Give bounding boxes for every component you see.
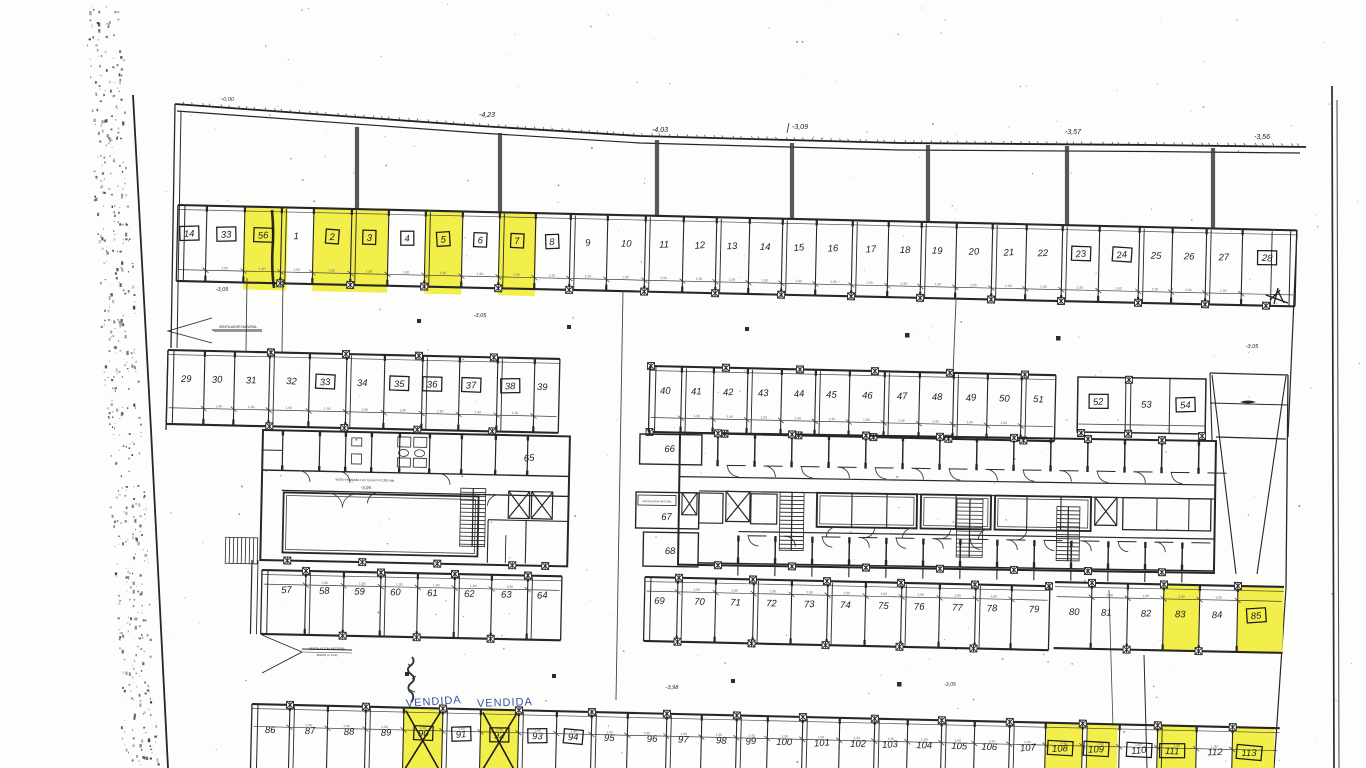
svg-text:1,90: 1,90 [1115, 286, 1122, 290]
svg-text:1,90: 1,90 [1142, 594, 1149, 598]
svg-text:26: 26 [1183, 251, 1196, 262]
svg-text:-3,05: -3,05 [1246, 344, 1259, 350]
svg-text:83: 83 [1175, 609, 1186, 620]
svg-text:85: 85 [1250, 610, 1262, 622]
svg-text:13: 13 [727, 241, 739, 252]
svg-text:1,90: 1,90 [359, 582, 366, 586]
svg-text:36: 36 [427, 379, 438, 390]
svg-text:1,90: 1,90 [1185, 288, 1192, 292]
svg-text:1: 1 [293, 231, 299, 242]
svg-text:113: 113 [1241, 748, 1257, 759]
svg-text:46: 46 [862, 390, 874, 401]
svg-text:1,90: 1,90 [1000, 421, 1007, 425]
svg-text:109: 109 [1088, 744, 1105, 755]
svg-text:86: 86 [265, 725, 276, 736]
svg-text:1,90: 1,90 [1178, 595, 1185, 599]
svg-text:1,90: 1,90 [769, 589, 776, 593]
svg-text:91: 91 [455, 729, 466, 741]
svg-text:112: 112 [1207, 747, 1223, 758]
svg-text:10: 10 [621, 238, 633, 249]
svg-text:33: 33 [319, 377, 331, 389]
svg-text:~0,00: ~0,00 [220, 97, 235, 103]
svg-text:1,90: 1,90 [795, 279, 802, 283]
svg-text:1,90: 1,90 [470, 584, 477, 588]
svg-text:1,90: 1,90 [863, 418, 870, 422]
svg-text:66: 66 [664, 444, 676, 456]
svg-text:70: 70 [694, 597, 706, 608]
svg-text:40: 40 [660, 386, 672, 397]
svg-text:48: 48 [932, 392, 944, 403]
svg-text:1,90: 1,90 [843, 591, 850, 595]
svg-text:49: 49 [965, 392, 977, 404]
svg-text:57: 57 [281, 585, 293, 596]
svg-text:1,90: 1,90 [761, 416, 768, 420]
svg-text:76: 76 [914, 602, 926, 613]
svg-text:1,90: 1,90 [954, 594, 961, 598]
svg-text:-3,05: -3,05 [216, 287, 229, 293]
svg-text:104: 104 [916, 740, 932, 752]
svg-text:43: 43 [758, 388, 770, 400]
svg-text:1,90: 1,90 [866, 281, 873, 285]
svg-text:1,90: 1,90 [437, 409, 444, 413]
svg-text:24: 24 [1115, 249, 1128, 261]
svg-text:106: 106 [981, 742, 998, 754]
svg-text:11: 11 [659, 239, 669, 250]
svg-text:53: 53 [1141, 399, 1153, 410]
svg-text:71: 71 [730, 597, 741, 608]
svg-text:VENDIDA: VENDIDA [477, 696, 533, 710]
svg-text:1,90: 1,90 [248, 405, 255, 409]
svg-text:12: 12 [694, 240, 706, 252]
svg-text:17: 17 [865, 244, 877, 256]
svg-text:1,90: 1,90 [440, 271, 447, 275]
svg-text:1,90: 1,90 [932, 419, 939, 423]
svg-text:1,90: 1,90 [321, 581, 328, 585]
svg-text:1,90: 1,90 [898, 419, 905, 423]
svg-text:74: 74 [840, 600, 851, 611]
svg-text:14: 14 [184, 229, 195, 241]
svg-text:39: 39 [537, 382, 549, 393]
svg-text:1,90: 1,90 [366, 269, 373, 273]
svg-text:1,90: 1,90 [512, 411, 519, 415]
svg-text:107: 107 [1020, 742, 1037, 754]
svg-text:-3,05: -3,05 [944, 682, 956, 688]
svg-text:1,90: 1,90 [585, 274, 592, 278]
svg-text:1,90: 1,90 [694, 414, 701, 418]
svg-text:65: 65 [523, 453, 535, 465]
svg-text:1,90: 1,90 [285, 406, 292, 410]
svg-text:25: 25 [1150, 251, 1162, 262]
svg-text:1,90: 1,90 [1151, 287, 1158, 291]
svg-text:44: 44 [793, 388, 805, 400]
svg-text:1,90: 1,90 [795, 416, 802, 420]
svg-text:1,90: 1,90 [324, 407, 331, 411]
svg-text:-3,56: -3,56 [1254, 134, 1270, 141]
svg-text:1,90: 1,90 [970, 283, 977, 287]
svg-text:31: 31 [246, 375, 257, 386]
svg-text:37: 37 [466, 380, 478, 392]
svg-text:1,90: 1,90 [990, 594, 997, 598]
svg-text:50: 50 [999, 393, 1011, 405]
svg-text:1,90: 1,90 [399, 408, 406, 412]
svg-text:98: 98 [716, 735, 728, 747]
svg-text:72: 72 [766, 598, 777, 609]
svg-text:95: 95 [604, 733, 616, 744]
svg-text:1,90: 1,90 [693, 588, 700, 592]
svg-text:59: 59 [354, 586, 365, 597]
svg-text:94: 94 [568, 732, 579, 743]
svg-text:VENTILADOR NATURAL: VENTILADOR NATURAL [219, 325, 257, 329]
svg-text:1,90: 1,90 [215, 404, 222, 408]
svg-text:42: 42 [723, 387, 735, 399]
svg-text:88: 88 [343, 726, 355, 738]
svg-text:1,90: 1,90 [506, 585, 513, 589]
svg-text:-4,23: -4,23 [479, 112, 495, 119]
svg-text:51: 51 [1033, 394, 1044, 406]
svg-text:84: 84 [1211, 610, 1222, 622]
svg-text:1,90: 1,90 [731, 589, 738, 593]
svg-text:60: 60 [390, 587, 402, 598]
svg-text:1,90: 1,90 [696, 277, 703, 281]
svg-text:28: 28 [1261, 253, 1274, 265]
svg-text:18: 18 [900, 245, 911, 256]
svg-text:54: 54 [1180, 400, 1191, 412]
svg-text:21: 21 [1002, 247, 1014, 259]
svg-text:1,90: 1,90 [1040, 285, 1047, 289]
svg-text:1,90: 1,90 [880, 592, 887, 596]
svg-text:-3,09: -3,09 [792, 124, 808, 131]
svg-text:93: 93 [532, 731, 544, 742]
svg-text:VENTILACION NATURAL: VENTILACION NATURAL [642, 499, 673, 503]
svg-text:33: 33 [221, 229, 233, 241]
svg-text:79: 79 [1029, 604, 1041, 616]
svg-text:100: 100 [776, 737, 793, 748]
svg-text:23: 23 [1074, 249, 1087, 261]
svg-text:97: 97 [678, 734, 690, 745]
svg-text:89: 89 [381, 727, 393, 739]
svg-text:1,90: 1,90 [513, 273, 520, 277]
svg-text:VENTILACION NATURAL: VENTILACION NATURAL [309, 647, 346, 651]
svg-text:1,90: 1,90 [806, 590, 813, 594]
svg-text:4: 4 [404, 234, 410, 245]
svg-text:1,90: 1,90 [935, 282, 942, 286]
svg-text:99: 99 [745, 736, 757, 748]
svg-text:34: 34 [357, 378, 368, 389]
svg-text:19: 19 [932, 246, 944, 257]
svg-text:1,90: 1,90 [477, 272, 484, 276]
svg-text:1,90: 1,90 [221, 266, 228, 270]
svg-text:2: 2 [328, 232, 335, 243]
svg-text:1,90: 1,90 [1005, 284, 1012, 288]
svg-text:300x57 (1,7m2): 300x57 (1,7m2) [316, 653, 337, 657]
svg-text:110: 110 [1131, 745, 1148, 757]
svg-text:1,90: 1,90 [1215, 595, 1222, 599]
svg-text:-3,98: -3,98 [666, 685, 679, 691]
svg-text:30: 30 [212, 374, 224, 386]
svg-text:1,90: 1,90 [762, 278, 769, 282]
svg-text:63: 63 [501, 589, 513, 600]
svg-text:1,90: 1,90 [660, 276, 667, 280]
svg-text:105: 105 [951, 741, 968, 753]
svg-text:1,90: 1,90 [474, 410, 481, 414]
svg-text:5: 5 [441, 234, 447, 245]
svg-text:14: 14 [760, 242, 771, 253]
svg-text:1,90: 1,90 [328, 269, 335, 273]
svg-text:1,90: 1,90 [727, 415, 734, 419]
svg-text:16: 16 [827, 243, 839, 255]
svg-text:47: 47 [897, 391, 909, 403]
svg-text:1,90: 1,90 [1106, 593, 1113, 597]
svg-text:41: 41 [691, 386, 702, 397]
svg-text:111: 111 [1165, 746, 1180, 757]
svg-text:15: 15 [793, 242, 805, 254]
svg-text:1,90: 1,90 [403, 270, 410, 274]
svg-text:96: 96 [647, 734, 659, 746]
svg-text:1,90: 1,90 [830, 280, 837, 284]
svg-text:75: 75 [878, 601, 890, 612]
svg-text:1,90: 1,90 [917, 593, 924, 597]
svg-text:22: 22 [1036, 248, 1049, 260]
svg-text:1,90: 1,90 [361, 408, 368, 412]
svg-text:103: 103 [882, 739, 899, 751]
svg-text:32: 32 [286, 376, 298, 388]
svg-text:-3,57: -3,57 [1065, 129, 1082, 136]
svg-text:102: 102 [850, 739, 867, 750]
svg-text:80: 80 [1069, 607, 1080, 618]
svg-text:82: 82 [1141, 608, 1153, 620]
svg-text:1,90: 1,90 [433, 583, 440, 587]
svg-text:1,90: 1,90 [729, 278, 736, 282]
svg-text:64: 64 [537, 590, 548, 602]
svg-text:1,90: 1,90 [549, 274, 556, 278]
svg-text:-3,05: -3,05 [361, 485, 372, 490]
svg-text:78: 78 [986, 603, 998, 615]
svg-text:1,90: 1,90 [828, 417, 835, 421]
svg-text:1,90: 1,90 [901, 282, 908, 286]
svg-text:77: 77 [952, 602, 964, 613]
svg-text:35: 35 [394, 379, 405, 390]
svg-text:1,90: 1,90 [1220, 289, 1227, 293]
svg-text:27: 27 [1217, 252, 1230, 264]
svg-text:-4,03: -4,03 [652, 127, 668, 134]
svg-text:69: 69 [654, 596, 666, 607]
svg-text:67: 67 [661, 512, 673, 523]
svg-text:68: 68 [665, 546, 676, 557]
svg-text:101: 101 [814, 737, 831, 749]
svg-text:1,90: 1,90 [1077, 286, 1084, 290]
svg-text:61: 61 [427, 588, 438, 599]
svg-text:52: 52 [1092, 396, 1104, 408]
svg-text:108: 108 [1052, 743, 1069, 755]
svg-text:73: 73 [804, 599, 816, 611]
svg-text:81: 81 [1101, 608, 1112, 619]
svg-text:1,90: 1,90 [966, 420, 973, 424]
svg-text:-3,05: -3,05 [474, 313, 487, 319]
svg-text:87: 87 [304, 725, 316, 737]
svg-text:38: 38 [505, 381, 516, 392]
svg-text:58: 58 [319, 585, 331, 597]
svg-text:1,90: 1,90 [293, 268, 300, 272]
svg-text:56: 56 [258, 230, 270, 242]
svg-text:45: 45 [826, 389, 838, 400]
svg-text:62: 62 [464, 589, 476, 601]
svg-text:29: 29 [180, 374, 192, 385]
svg-text:1,90: 1,90 [396, 582, 403, 586]
svg-text:20: 20 [967, 246, 980, 258]
svg-text:1,90: 1,90 [259, 267, 266, 271]
svg-text:1,90: 1,90 [622, 275, 629, 279]
